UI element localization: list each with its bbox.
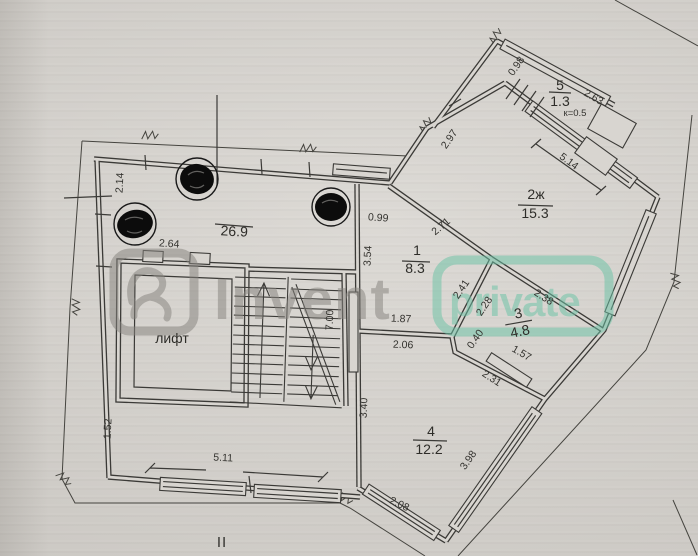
dim-3-54: 3.54 [361,245,374,266]
room3-area: 4.8 [509,321,532,341]
redaction-scribble [114,207,155,242]
window-bottom-left [160,477,247,495]
dim-1-87: 1.87 [391,313,412,326]
window-bottom-right [254,484,342,502]
room4-number: 4 [427,423,435,439]
dim-1-57: 1.57 [510,343,534,364]
room5-number: 5 [556,77,564,93]
dim-2-06: 2.06 [393,339,414,352]
window-sw [363,484,441,540]
room4-area: 12.2 [415,441,442,457]
dim-2-97: 2.97 [439,127,461,151]
dim-3-40: 3.40 [358,397,371,418]
room-hall-area: 26.9 [220,222,248,239]
room5-coef: к=0.5 [564,108,587,119]
floor-plan-drawing: Invent private 26.9 лифт 1 8.3 2ж 15.3 3… [0,0,698,556]
watermark-logo-icon [131,271,168,318]
room-lift-label: лифт [155,330,189,346]
scanned-floor-plan: Invent private 26.9 лифт 1 8.3 2ж 15.3 3… [0,0,698,556]
redaction-scribble [315,193,347,221]
room1-area: 8.3 [405,260,425,276]
room5-area: 1.3 [550,93,570,109]
dim-2-14: 2.14 [113,172,126,193]
room1-number: 1 [413,242,421,258]
watermark-gray-text: Invent [214,267,391,332]
pier-balcony-east [588,104,637,148]
section-mark: II [217,534,227,551]
stair-down-arrow [304,335,319,399]
dim-2-64: 2.64 [159,237,180,250]
room2-number: 2ж [527,186,545,202]
dim-3-98: 3.98 [458,448,480,472]
dim-7-00: 7.00 [324,309,337,330]
dim-2-31: 2.31 [480,368,504,389]
dim-5-11: 5.11 [213,451,233,464]
room2-area: 15.3 [521,205,548,221]
dim-1-52: 1.52 [101,418,114,439]
dim-0-99: 0.99 [368,211,389,224]
